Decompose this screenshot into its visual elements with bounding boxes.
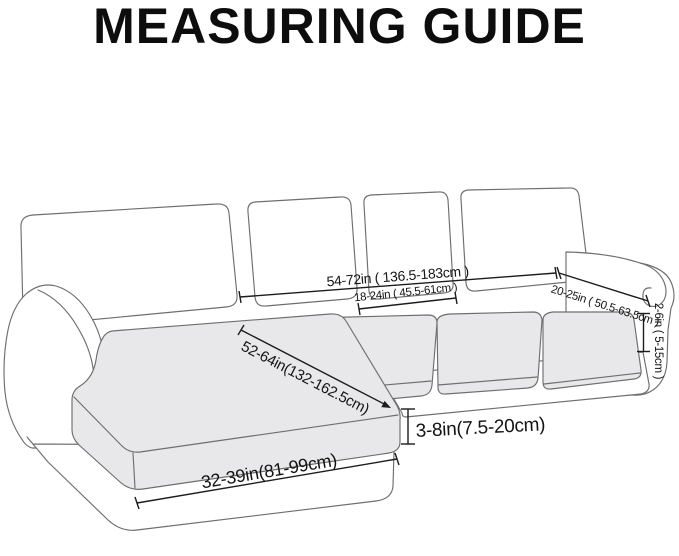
measuring-guide-page: MEASURING GUIDE: [0, 0, 679, 556]
arm-front-height-label: 2-6in ( 5-15cm ): [652, 303, 664, 380]
sofa-measuring-diagram: 54-72in ( 136.5-183cm ) 18-24in ( 45.5-6…: [0, 0, 679, 556]
back-cushions: [21, 188, 588, 325]
cushion-height-label: 3-8in(7.5-20cm): [415, 414, 546, 442]
seat-cushion-2: [437, 312, 542, 394]
seat-cushion-3: [543, 312, 641, 389]
